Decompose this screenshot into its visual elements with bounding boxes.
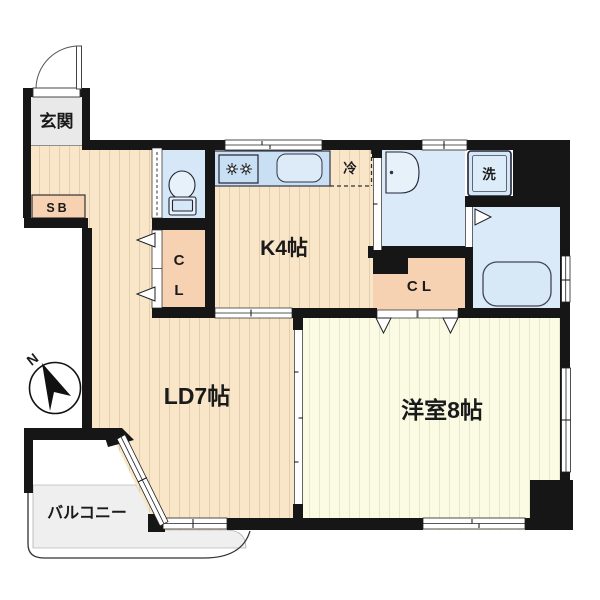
label-kitchen: K4帖 [260,237,308,260]
kitchen-entry-door [215,308,292,318]
label-closet-hall-c: C [174,252,185,269]
washroom-window [422,140,467,150]
label-living-dining: LD7帖 [164,383,230,409]
ld-bottom-window [163,518,227,529]
label-closet-bedroom: C L [407,278,431,295]
kitchen-counter [214,151,330,186]
kitchen-sink-icon [277,154,322,182]
toilet-door [152,148,162,218]
label-genkan: 玄関 [40,111,74,131]
kitchen-washroom-door [373,158,382,250]
western-room-bottom-window [423,518,525,529]
bath-window [562,256,571,302]
bathroom-door [465,207,473,247]
western-room-side-window [562,368,571,472]
label-closet-hall-l: L [174,282,183,299]
bathtub-icon [483,262,551,306]
entrance-door-leaf [77,46,82,89]
floor-plan: N 玄関 SB K4帖 LD7帖 洋室8帖 バルコニー C L C L 冷 洗 [0,0,600,600]
floor-plan-page: N 玄関 SB K4帖 LD7帖 洋室8帖 バルコニー C L C L 冷 洗 [0,0,600,600]
label-balcony: バルコニー [47,504,127,522]
kitchen-window [225,140,322,150]
washbasin-icon [386,152,419,193]
toilet-icon [169,171,196,215]
label-shoe-box: SB [46,201,69,215]
label-washer: 洗 [482,166,496,182]
stove-icon [219,155,258,183]
label-western-room: 洋室8帖 [401,397,483,423]
ld-western-sliding-door [294,330,303,504]
label-refrigerator: 冷 [343,160,357,176]
